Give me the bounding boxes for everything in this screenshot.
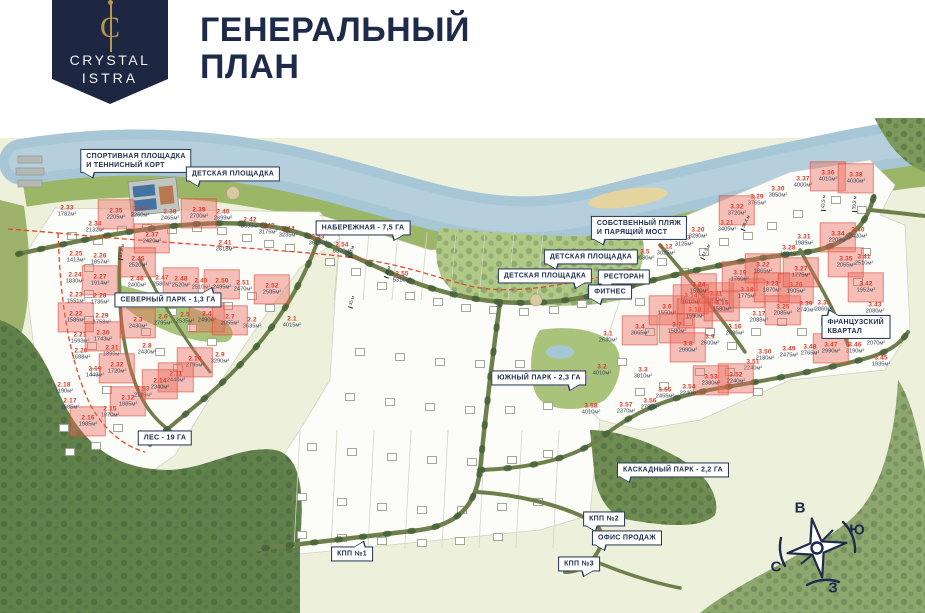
plot-number: 3.34 [829, 230, 847, 237]
plot-area: 1688м² [72, 354, 90, 360]
plot-area: 2520м² [172, 282, 190, 288]
plot-number: 2.50 [213, 277, 231, 284]
plot-area: 1720м² [108, 368, 126, 374]
plot-number: 2.16 [79, 414, 97, 421]
plot-number: 2.44 [279, 225, 297, 232]
plot-label-3.48: 3.482765м² [801, 343, 819, 356]
plot-number: 2.18 [55, 381, 73, 388]
plot-area: 1520м² [690, 288, 708, 294]
callout-text: ФРАНЦУЗСКИЙ КВАРТАЛ [828, 319, 885, 335]
plot-area: 1551м² [67, 298, 85, 304]
plot-label-3.49: 3.492475м² [780, 345, 798, 358]
plot-number: 3.30 [769, 185, 787, 192]
plot-label-3.9: 3.92600м² [701, 333, 719, 346]
plot-number: 3.3 [634, 366, 652, 373]
plot-area: 2600м² [701, 340, 719, 346]
plot-label-2.50: 2.502495м² [213, 277, 231, 290]
plot-label-3.39: 3.392740м² [797, 300, 815, 313]
callout-text: РЕСТОРАН [604, 273, 644, 280]
plot-number: 3.53 [702, 373, 720, 380]
plot-label-3.34: 3.342208м² [829, 230, 847, 243]
plot-number: 3.52 [727, 371, 745, 378]
plot-label-2.7: 2.72055м² [221, 313, 239, 326]
plot-label-2.36: 2.362260м² [131, 205, 149, 218]
plot-number: 3.36 [819, 169, 837, 176]
plot-number: 2.37 [143, 231, 161, 238]
playground-icon-2 [530, 294, 542, 306]
plot-label-2.39: 2.392700м² [190, 206, 208, 219]
plot-area: 2430м² [138, 349, 156, 355]
plot-label-3.58: 3.584010м² [582, 402, 600, 415]
plot-label-3.38: 3.384030м² [847, 171, 865, 184]
plot-area: 4000м² [794, 182, 812, 188]
plot-label-3.36: 3.364010м² [819, 169, 837, 182]
plot-label-2.35: 2.352205м² [107, 207, 125, 220]
plot-number: 2.25 [67, 250, 85, 257]
plot-area: 1905м² [787, 288, 805, 294]
plot-area: 3850м² [769, 192, 787, 198]
plot-area: 1586м² [67, 317, 85, 323]
plot-label-3.32: 3.323720м² [728, 203, 746, 216]
plot-number: 3.8 [679, 340, 697, 347]
callout-cascade-park: КАСКАДНЫЙ ПАРК - 2,2 ГА [617, 462, 729, 477]
plot-number: 3.5 [636, 248, 654, 255]
plot-number: 3.27 [792, 265, 810, 272]
plot-area: 2740м² [797, 307, 815, 313]
callout-playground-right: ДЕТСКАЯ ПЛОЩАДКА [544, 249, 638, 264]
callout-text: КПП №1 [337, 550, 367, 557]
plot-label-2.32: 2.321720м² [108, 361, 126, 374]
callout-text: КПП №2 [589, 515, 619, 522]
plot-area: 1782м² [58, 211, 76, 217]
compass-letter-west: З [828, 580, 837, 597]
plot-area: 2990м² [822, 348, 840, 354]
plot-number: 3.43 [866, 301, 884, 308]
plot-number: 3.31 [795, 233, 813, 240]
callout-text: СЕВЕРНЫЙ ПАРК - 1,3 ГА [120, 296, 215, 303]
plot-area: 2585м² [263, 289, 281, 295]
plot-label-2.22: 2.221586м² [67, 310, 85, 323]
plot-label-2.41: 2.412618м² [216, 239, 234, 252]
brand-line2: ISTRA [82, 70, 138, 86]
plot-number: 3.58 [582, 402, 600, 409]
plot-area: 1885м² [119, 401, 137, 407]
callout-text: ДЕТСКАЯ ПЛОЩАДКА [192, 170, 274, 177]
plot-label-3.53: 3.532380м² [702, 373, 720, 386]
plot-area: 4010м² [582, 409, 600, 415]
callout-playground-north: ДЕТСКАЯ ПЛОЩАДКА [186, 166, 280, 181]
plot-area: 2990м² [679, 347, 697, 353]
plot-label-2.55: 2.555310м² [393, 270, 411, 283]
plot-area: 2750м² [641, 404, 659, 410]
plot-number: 3.57 [617, 401, 635, 408]
callout-checkpoint-2: КПП №2 [583, 511, 625, 526]
compass-letter-east: В [795, 500, 806, 517]
plot-area: 3235м² [279, 232, 297, 238]
plot-area: 1985м² [79, 421, 97, 427]
plot-number: 2.27 [91, 273, 109, 280]
plot-number: 2.55 [393, 270, 411, 277]
marina [16, 156, 44, 187]
callout-text: КАСКАДНЫЙ ПАРК - 2,2 ГА [623, 466, 723, 473]
plot-area: 3290м² [689, 233, 707, 239]
plot-label-2.26: 2.261857м² [91, 252, 109, 265]
plot-label-2.37: 2.372420м² [143, 231, 161, 244]
callout-forest: ЛЕС - 19 ГА [138, 430, 192, 445]
plot-label-3.12: 3.123025м² [657, 243, 675, 256]
plot-area: 1743м² [94, 336, 112, 342]
plot-label-3.42: 3.421952м² [857, 280, 875, 293]
plot-label-2.51: 2.512470м² [234, 279, 252, 292]
plot-label-3.25: 3.252085м² [774, 303, 792, 316]
callout-checkpoint-1: КПП №1 [331, 546, 373, 561]
plot-label-3.27: 3.271775м² [792, 265, 810, 278]
plot-number: 3.33 [815, 299, 833, 306]
plot-number: 3.50 [756, 348, 774, 355]
plot-label-2.43: 2.433175м² [259, 222, 277, 235]
callout-text: ЛЕС - 19 ГА [144, 434, 186, 441]
plot-area: 2205м² [107, 214, 125, 220]
callout-text: ДЕТСКАЯ ПЛОЩАДКА [550, 253, 632, 260]
plot-number: 2.30 [94, 329, 112, 336]
plot-area: 2055м² [837, 262, 855, 268]
plot-area: 2208м² [829, 237, 847, 243]
plot-label-2.17: 2.171685м² [61, 397, 79, 410]
plot-area: 1684м² [780, 251, 798, 257]
plot-area: 3290м² [211, 358, 229, 364]
plot-number: 2.31 [103, 344, 121, 351]
plot-number: 2.38 [161, 208, 179, 215]
plot-label-2.44: 2.443235м² [279, 225, 297, 238]
plot-label-3.5: 3.53030м² [636, 248, 654, 261]
callout-sales-office: ОФИС ПРОДАЖ [592, 530, 662, 545]
plot-number: 2.39 [190, 206, 208, 213]
plot-label-2.33: 2.331782м² [58, 204, 76, 217]
plot-area: 2380м² [702, 380, 720, 386]
plot-number: 3.24 [690, 281, 708, 288]
plot-number: 3.48 [801, 343, 819, 350]
plot-number: 2.40 [214, 208, 232, 215]
plot-number: 2.6 [154, 313, 172, 320]
plot-label-2.8: 2.82430м² [138, 342, 156, 355]
plot-label-2.30: 2.301743м² [94, 329, 112, 342]
plot-area: 1985м² [795, 240, 813, 246]
plot-area: 2080м² [866, 308, 884, 314]
plot-number: 2.9 [211, 351, 229, 358]
plot-label-3.2: 3.24010м² [593, 363, 611, 376]
plot-label-3.57: 3.572370м² [617, 401, 635, 414]
plot-number: 2.51 [234, 279, 252, 286]
plot-area: 2430м² [129, 323, 147, 329]
plot-label-3.40: 3.402420м² [849, 226, 867, 239]
plot-area: 2636м² [726, 330, 744, 336]
plot-label-2.6: 2.62795м² [154, 313, 172, 326]
plot-label-2.14: 2.142340м² [151, 377, 169, 390]
plot-area: 3175м² [259, 229, 277, 235]
plot-area: 2420м² [849, 233, 867, 239]
pond [546, 345, 574, 359]
callout-checkpoint-3: КПП №3 [558, 556, 600, 571]
plot-number: 3.56 [641, 397, 659, 404]
plot-area: 2070м² [867, 340, 885, 346]
plot-area: 4030м² [847, 178, 865, 184]
plot-area: 3035м² [241, 223, 259, 229]
plot-number: 2.36 [131, 205, 149, 212]
plot-label-3.16: 3.162636м² [726, 323, 744, 336]
plot-label-2.1: 2.14015м² [283, 315, 301, 328]
plot-number: 3.42 [857, 280, 875, 287]
plot-number: 2.28 [91, 292, 109, 299]
plot-area: 2475м² [780, 352, 798, 358]
plot-label-3.52: 3.522240м² [727, 371, 745, 384]
plot-number: 2.5 [176, 311, 194, 318]
plot-area: 2260м² [131, 212, 149, 218]
plot-area: 2240м² [727, 378, 745, 384]
callout-text: ЮЖНЫЙ ПАРК - 2,3 ГА [497, 374, 580, 381]
plot-number: 2.22 [67, 310, 85, 317]
brand-line1: CRYSTAL [70, 52, 151, 68]
plot-label-2.18: 2.181190м² [55, 381, 73, 394]
plot-area: 3720м² [728, 210, 746, 216]
compass-rose [755, 486, 885, 610]
plot-number: 3.9 [701, 333, 719, 340]
plot-label-2.3: 2.32430м² [129, 316, 147, 329]
plot-area: 2630м² [599, 337, 617, 343]
page-title: ГЕНЕРАЛЬНЫЙ ПЛАН [200, 12, 470, 87]
callout-playground-center: ДЕТСКАЯ ПЛОЩАДКА [498, 268, 592, 283]
plot-area: 1413м² [67, 257, 85, 263]
plot-label-2.16: 2.161985м² [79, 414, 97, 427]
plot-number: 3.55 [656, 386, 674, 393]
callout-text: ДЕТСКАЯ ПЛОЩАДКА [504, 272, 586, 279]
plot-area: 2240м² [680, 390, 698, 396]
plot-area: 2400м² [128, 282, 146, 288]
plot-area: 1685м² [61, 404, 79, 410]
plot-label-3.41: 3.412510м² [855, 253, 873, 266]
general-plan-page: C CRYSTAL ISTRA ГЕНЕРАЛЬНЫЙ ПЛАН 2.14015… [0, 0, 925, 613]
plot-label-3.45: 3.451935м² [872, 354, 890, 367]
plot-number: 2.41 [216, 239, 234, 246]
callout-text: ОФИС ПРОДАЖ [598, 534, 656, 541]
plot-number: 2.17 [61, 397, 79, 404]
plot-area: 3810м² [634, 373, 652, 379]
plot-label-2.46: 2.462400м² [128, 275, 146, 288]
plot-label-3.47: 3.472990м² [822, 341, 840, 354]
logo-monogram-icon: C [90, 6, 130, 50]
plot-number: 3.12 [657, 243, 675, 250]
plot-label-3.4: 3.43665м² [631, 323, 649, 336]
callout-north-park: СЕВЕРНЫЙ ПАРК - 1,3 ГА [114, 292, 221, 307]
plot-number: 2.29 [93, 312, 111, 319]
plot-number: 3.54 [680, 383, 698, 390]
plot-area: 2420м² [143, 238, 161, 244]
header: C CRYSTAL ISTRA ГЕНЕРАЛЬНЫЙ ПЛАН [0, 0, 925, 118]
plot-label-2.42: 2.423035м² [241, 216, 259, 229]
plot-area: 4010м² [819, 176, 837, 182]
playground-icon [227, 187, 240, 200]
compass-letter-south: Ю [849, 522, 864, 539]
callout-fitness: ФИТНЕС [588, 284, 632, 299]
plot-label-3.8: 3.82990м² [679, 340, 697, 353]
plot-number: 3.47 [822, 341, 840, 348]
plot-area: 2340м² [151, 384, 169, 390]
plot-area: 3625м² [309, 240, 327, 246]
callout-french-quarter: ФРАНЦУЗСКИЙ КВАРТАЛ [822, 315, 891, 339]
plot-number: 2.46 [128, 275, 146, 282]
plot-area: 2765м² [801, 350, 819, 356]
plot-number: 2.1 [283, 315, 301, 322]
plot-area: 2795м² [154, 320, 172, 326]
plot-area: 2899м² [214, 215, 232, 221]
plot-label-3.24: 3.241520м² [690, 281, 708, 294]
callout-private-beach: СОБСТВЕННЫЙ ПЛЯЖ И ПАРЯЩИЙ МОСТ [591, 216, 687, 240]
plot-area: 2520м² [129, 262, 147, 268]
plot-label-3.37: 3.374000м² [794, 175, 812, 188]
plot-number: 2.45 [129, 255, 147, 262]
plot-area: 2618м² [216, 246, 234, 252]
callout-text: ФИТНЕС [594, 288, 626, 295]
plot-label-3.1: 3.12630м² [599, 330, 617, 343]
plot-label-2.52: 2.522585м² [263, 282, 281, 295]
plot-number: 3.49 [780, 345, 798, 352]
plot-label-3.30: 3.303850м² [769, 185, 787, 198]
plot-number: 2.35 [107, 207, 125, 214]
plot-label-2.28: 2.281736м² [91, 292, 109, 305]
plot-area: 1914м² [91, 280, 109, 286]
plot-number: 3.38 [847, 171, 865, 178]
callout-south-park: ЮЖНЫЙ ПАРК - 2,3 ГА [491, 370, 586, 385]
west-green [0, 200, 29, 336]
plot-number: 3.4 [631, 323, 649, 330]
plot-label-2.9: 2.93290м² [211, 351, 229, 364]
plot-area: 3125м² [675, 241, 693, 247]
plot-number: 3.2 [593, 363, 611, 370]
plot-label-2.27: 2.271914м² [91, 273, 109, 286]
plot-number: 3.37 [794, 175, 812, 182]
plot-area: 2465м² [161, 215, 179, 221]
plot-number: 3.45 [872, 354, 890, 361]
plot-area: 2370м² [617, 408, 635, 414]
plot-label-3.43: 3.432080м² [866, 301, 884, 314]
plot-area: 3405м² [718, 226, 736, 232]
plot-area: 2055м² [221, 320, 239, 326]
callout-text: СОБСТВЕННЫЙ ПЛЯЖ И ПАРЯЩИЙ МОСТ [597, 220, 681, 236]
plot-number: 3.39 [797, 300, 815, 307]
plot-label-3.54: 3.542240м² [680, 383, 698, 396]
plot-label-2.25: 2.251413м² [67, 250, 85, 263]
plot-number: 2.7 [221, 313, 239, 320]
plot-area: 3665м² [631, 330, 649, 336]
plot-number: 2.14 [151, 377, 169, 384]
plot-label-3.56: 3.562750м² [641, 397, 659, 410]
plot-number: 2.32 [108, 361, 126, 368]
callout-restaurant: РЕСТОРАН [598, 269, 650, 284]
plot-label-2.48: 2.482520м² [172, 275, 190, 288]
plot-number: 3.32 [728, 203, 746, 210]
plot-area: 2470м² [234, 286, 252, 292]
plot-area: 1935м² [872, 361, 890, 367]
plot-label-2.5: 2.52535м² [176, 311, 194, 324]
plot-label-2.40: 2.402899м² [214, 208, 232, 221]
plot-number: 2.54 [333, 241, 351, 248]
compass-letter-north: С [771, 559, 782, 576]
plot-label-3.20: 3.203290м² [689, 226, 707, 239]
plot-number: 3.25 [774, 303, 792, 310]
plot-number: 2.26 [91, 252, 109, 259]
callout-embankment: НАБЕРЕЖНАЯ - 7,5 ГА [316, 220, 411, 235]
plot-number: 2.33 [58, 204, 76, 211]
plot-label-2.38: 2.382465м² [161, 208, 179, 221]
plot-area: 1952м² [857, 287, 875, 293]
plot-area: 2085м² [774, 310, 792, 316]
plot-number: 2.48 [172, 275, 190, 282]
plot-area: 1590м² [686, 313, 704, 319]
plot-area: 3025м² [657, 250, 675, 256]
plot-number: 2.43 [259, 222, 277, 229]
plot-area: 1736м² [91, 299, 109, 305]
plot-number: 2.3 [129, 316, 147, 323]
plot-area: 5310м² [393, 277, 411, 283]
plot-number: 2.42 [241, 216, 259, 223]
plot-area: 1190м² [55, 388, 73, 394]
plot-number: 3.1 [599, 330, 617, 337]
plot-number: 3.20 [689, 226, 707, 233]
plot-area: 2510м² [855, 260, 873, 266]
plot-label-2.45: 2.452520м² [129, 255, 147, 268]
plot-number: 2.52 [263, 282, 281, 289]
plot-number: 3.22 [754, 261, 772, 268]
plot-area: 4015м² [283, 322, 301, 328]
plot-area: 2495м² [213, 284, 231, 290]
plot-area: 1775м² [792, 272, 810, 278]
plot-area: 2700м² [190, 213, 208, 219]
plot-number: 3.35 [837, 255, 855, 262]
plot-label-3.31: 3.311985м² [795, 233, 813, 246]
plot-area: 3030м² [636, 255, 654, 261]
plot-area: 2535м² [176, 318, 194, 324]
callout-sports-ground: СПОРТИВНАЯ ПЛОЩАДКА И ТЕННИСНЫЙ КОРТ [80, 149, 191, 173]
plot-area: 4010м² [593, 370, 611, 376]
plot-label-3.35: 3.352055м² [837, 255, 855, 268]
plot-number: 2.8 [138, 342, 156, 349]
plot-number: 3.16 [726, 323, 744, 330]
crystal-istra-logo: C CRYSTAL ISTRA [52, 0, 168, 104]
plot-number: 3.40 [849, 226, 867, 233]
plot-number: 3.41 [855, 253, 873, 260]
callout-text: СПОРТИВНАЯ ПЛОЩАДКА И ТЕННИСНЫЙ КОРТ [86, 153, 185, 169]
plot-label-3.3: 3.33810м² [634, 366, 652, 379]
callout-text: НАБЕРЕЖНАЯ - 7,5 ГА [322, 224, 405, 231]
